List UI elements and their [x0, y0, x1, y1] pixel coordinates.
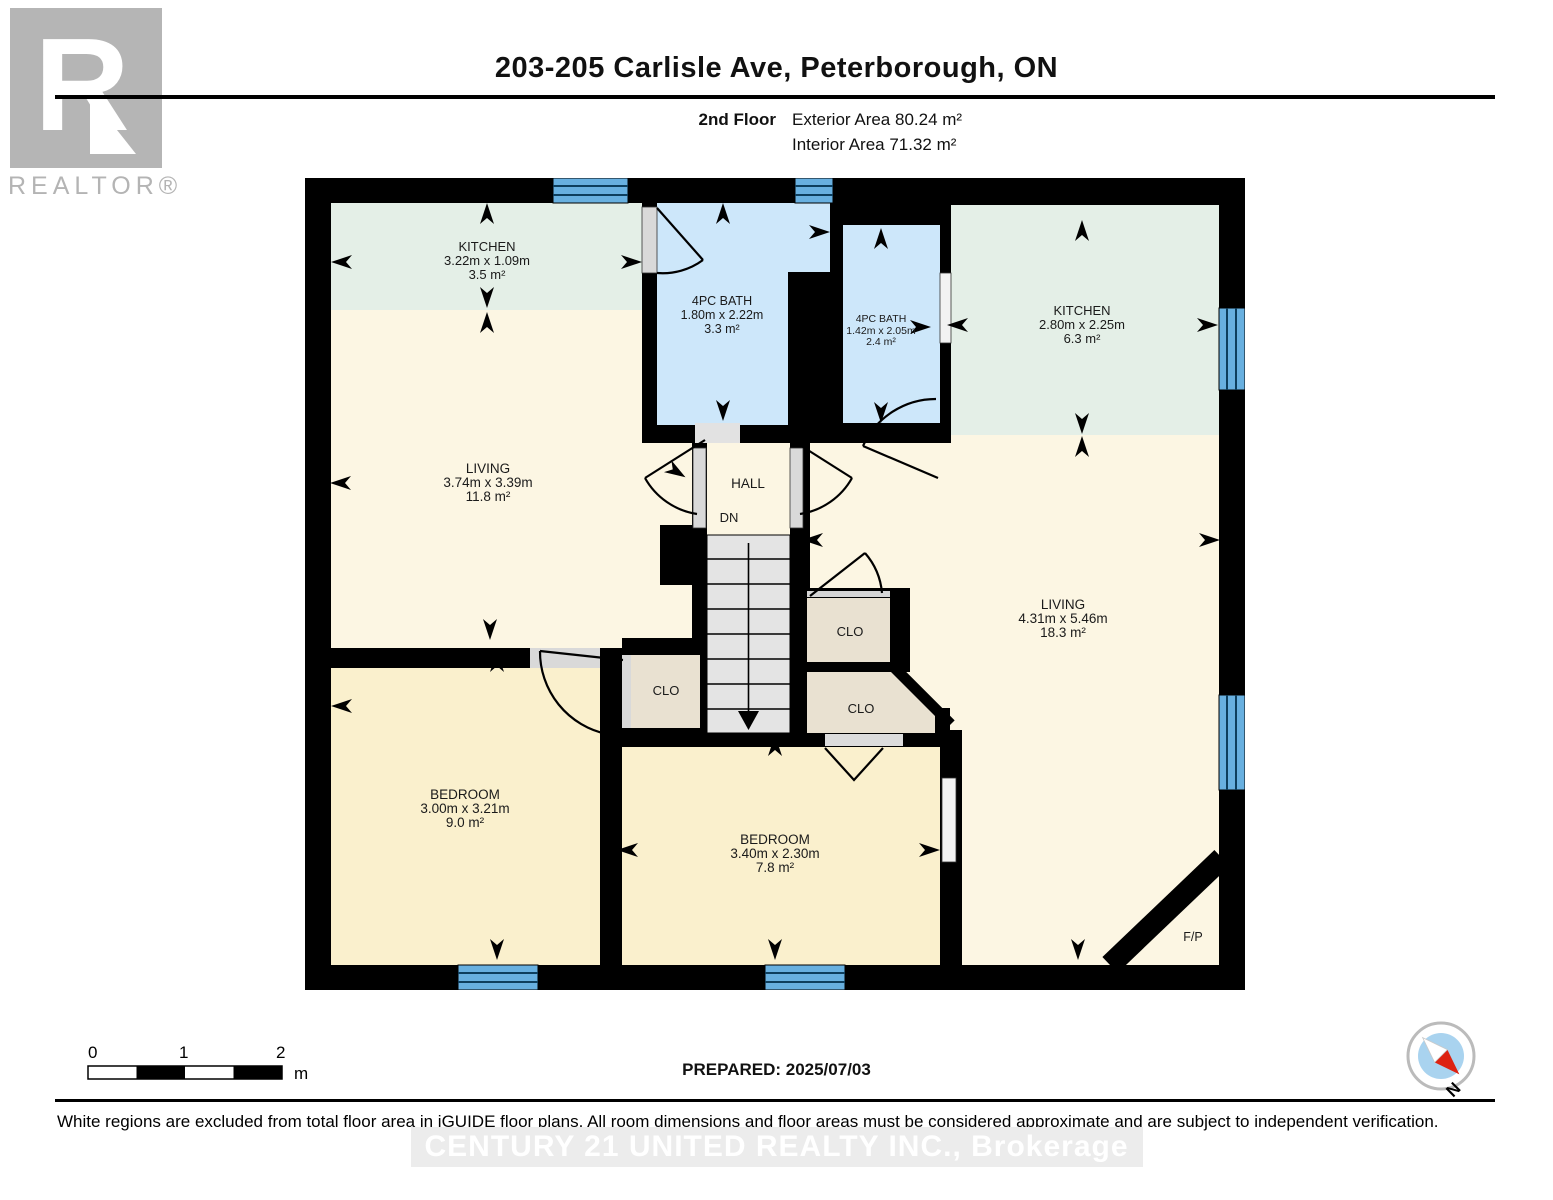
- closet-label-3: CLO: [848, 701, 875, 716]
- footer-divider: [55, 1099, 1495, 1102]
- svg-text:2.4 m²: 2.4 m²: [866, 336, 896, 348]
- window-right-2: [1219, 695, 1245, 790]
- window-right-1: [1219, 308, 1245, 390]
- stairs-dn-label: DN: [720, 510, 739, 525]
- staircase: [707, 535, 790, 733]
- svg-text:3.00m x 3.21m: 3.00m x 3.21m: [420, 801, 509, 816]
- svg-text:18.3 m²: 18.3 m²: [1040, 625, 1086, 640]
- svg-text:3.22m x 1.09m: 3.22m x 1.09m: [444, 253, 530, 268]
- svg-text:BEDROOM: BEDROOM: [740, 832, 810, 847]
- page-title: 203-205 Carlisle Ave, Peterborough, ON: [0, 52, 1553, 85]
- closet-label-1: CLO: [653, 683, 680, 698]
- svg-text:3.74m x 3.39m: 3.74m x 3.39m: [443, 475, 532, 490]
- closet-label-2: CLO: [837, 624, 864, 639]
- svg-text:4PC BATH: 4PC BATH: [692, 294, 752, 308]
- compass-icon: N: [1396, 1016, 1486, 1111]
- svg-text:LIVING: LIVING: [1041, 597, 1085, 612]
- floor-plan-page: { "header": { "title": "203-205 Carlisle…: [0, 0, 1553, 1200]
- svg-text:LIVING: LIVING: [466, 461, 510, 476]
- realtor-wordmark: REALTOR®: [8, 172, 182, 201]
- title-divider: [55, 95, 1495, 99]
- svg-text:KITCHEN: KITCHEN: [458, 239, 515, 254]
- exterior-area: Exterior Area 80.24 m²: [792, 110, 962, 130]
- svg-text:7.8 m²: 7.8 m²: [756, 860, 795, 875]
- svg-text:3.40m x 2.30m: 3.40m x 2.30m: [730, 846, 819, 861]
- brokerage-watermark: CENTURY 21 UNITED REALTY INC., Brokerage: [410, 1127, 1142, 1167]
- window-top-1: [553, 178, 628, 203]
- svg-text:2.80m x 2.25m: 2.80m x 2.25m: [1039, 317, 1125, 332]
- svg-text:9.0 m²: 9.0 m²: [446, 815, 485, 830]
- svg-text:6.3 m²: 6.3 m²: [1064, 331, 1102, 346]
- realtor-logo: R: [10, 8, 164, 170]
- svg-text:BEDROOM: BEDROOM: [430, 787, 500, 802]
- svg-text:3.3 m²: 3.3 m²: [704, 322, 739, 336]
- window-bottom-2: [765, 965, 845, 990]
- floor-label: 2nd Floor: [600, 110, 776, 130]
- floor-plan: KITCHEN 3.22m x 1.09m 3.5 m² 4PC BATH 1.…: [305, 178, 1245, 990]
- svg-text:4.31m x 5.46m: 4.31m x 5.46m: [1018, 611, 1107, 626]
- svg-text:3.5 m²: 3.5 m²: [469, 267, 507, 282]
- svg-text:4PC BATH: 4PC BATH: [856, 313, 907, 325]
- prepared-date: PREPARED: 2025/07/03: [0, 1060, 1553, 1080]
- window-bottom-1: [458, 965, 538, 990]
- svg-text:1.80m x 2.22m: 1.80m x 2.22m: [681, 308, 764, 322]
- window-top-2: [795, 178, 833, 203]
- fireplace-label: F/P: [1183, 930, 1202, 944]
- svg-text:11.8 m²: 11.8 m²: [466, 489, 511, 504]
- hall-label: HALL: [731, 476, 765, 491]
- svg-text:KITCHEN: KITCHEN: [1053, 303, 1110, 318]
- interior-area: Interior Area 71.32 m²: [792, 135, 956, 155]
